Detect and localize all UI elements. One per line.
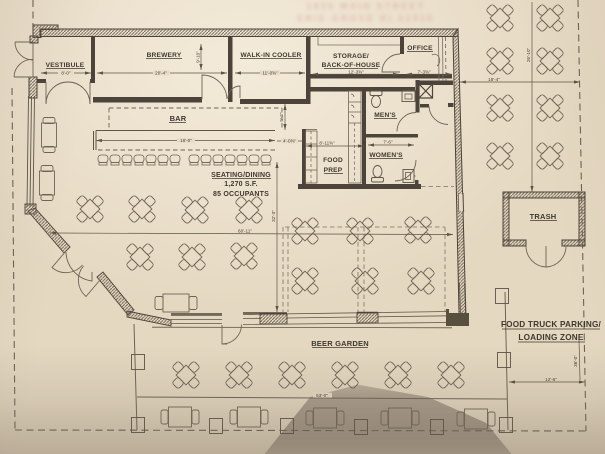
svg-text:85 OCCUPANTS: 85 OCCUPANTS [213, 191, 269, 198]
svg-text:WOMEN'S: WOMEN'S [369, 152, 403, 159]
svg-text:5'-2": 5'-2" [279, 112, 284, 122]
svg-text:32'-3": 32'-3" [271, 210, 276, 222]
svg-text:BEER GARDEN: BEER GARDEN [311, 339, 369, 348]
svg-text:PREP: PREP [324, 167, 343, 174]
svg-text:9'-10": 9'-10" [196, 51, 201, 63]
svg-text:BAR: BAR [170, 114, 187, 123]
svg-text:8'-11⅝": 8'-11⅝" [319, 141, 335, 146]
svg-text:18'-4": 18'-4" [488, 77, 500, 82]
svg-text:TRASH: TRASH [530, 212, 557, 221]
svg-text:11'-0⅝": 11'-0⅝" [262, 71, 278, 76]
svg-text:SEATING/DINING: SEATING/DINING [211, 172, 271, 179]
svg-text:26'-10": 26'-10" [526, 48, 531, 63]
svg-text:FOOD TRUCK PARKING/: FOOD TRUCK PARKING/ [501, 320, 602, 329]
svg-text:7'-6": 7'-6" [383, 140, 393, 145]
svg-text:53'-0": 53'-0" [316, 393, 328, 398]
svg-text:8'-0": 8'-0" [61, 71, 71, 76]
svg-text:36'-0": 36'-0" [573, 355, 578, 367]
svg-text:7'-3⅝": 7'-3⅝" [418, 69, 431, 74]
svg-text:STORAGE/: STORAGE/ [333, 53, 369, 60]
svg-text:LOADING ZONE: LOADING ZONE [518, 333, 584, 342]
svg-text:BACK-OF-HOUSE: BACK-OF-HOUSE [322, 62, 381, 69]
svg-text:1,270 S.F.: 1,270 S.F. [224, 181, 258, 188]
svg-text:BREWERY: BREWERY [147, 52, 182, 59]
svg-text:12'-6": 12'-6" [545, 377, 557, 382]
svg-text:MEN'S: MEN'S [374, 112, 396, 119]
svg-text:16'-0": 16'-0" [180, 138, 192, 143]
svg-text:60'-11": 60'-11" [238, 229, 252, 234]
svg-text:FOOD: FOOD [323, 157, 343, 164]
svg-text:4'-0⅝": 4'-0⅝" [283, 139, 296, 144]
svg-text:OFFICE: OFFICE [407, 45, 433, 52]
svg-text:VESTIBULE: VESTIBULE [46, 62, 85, 69]
svg-text:20'-4": 20'-4" [155, 71, 167, 76]
svg-text:WALK-IN COOLER: WALK-IN COOLER [240, 52, 301, 59]
svg-text:12'-3⅝": 12'-3⅝" [348, 69, 364, 74]
